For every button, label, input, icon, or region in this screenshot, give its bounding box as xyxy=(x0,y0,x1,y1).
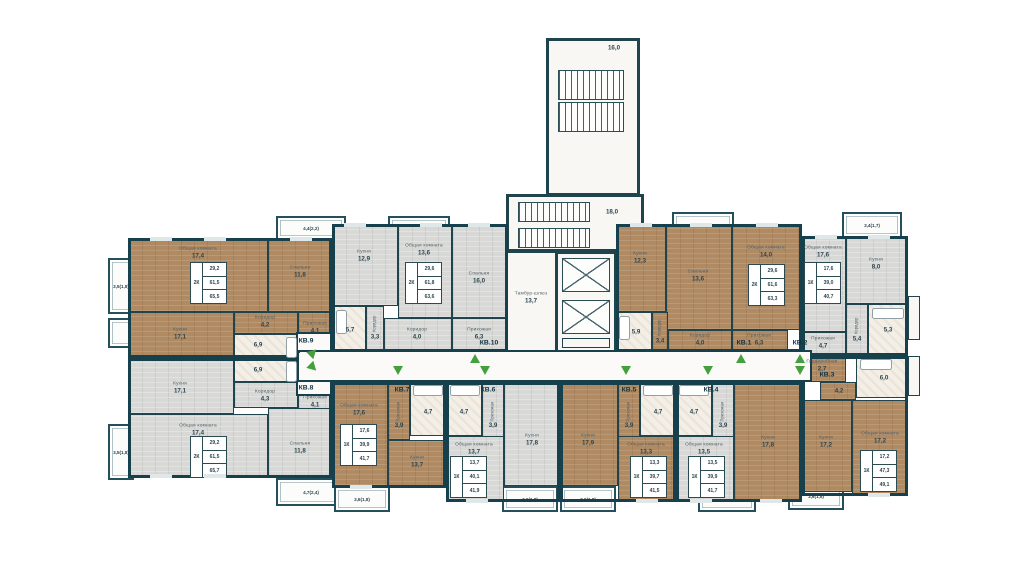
kv3-bath-label: 6,0 xyxy=(880,374,889,381)
room-area: 17,1 xyxy=(173,333,187,340)
kv1-kitchen xyxy=(616,224,666,312)
room-name: Общая комната xyxy=(685,442,723,448)
kv9-kitchen-label: Кухня17,1 xyxy=(173,327,187,340)
balcony-area: 4,7(2,4) xyxy=(303,490,319,495)
total-area: 61,5 xyxy=(203,277,226,291)
room-area: 13,3 xyxy=(627,448,665,455)
room-name: Гардеробная xyxy=(806,359,837,365)
kv7-number: КВ.7 xyxy=(395,387,410,394)
kv5-bath-label: 4,7 xyxy=(654,408,663,415)
kv6-kitchen-label: Кухня17,8 xyxy=(525,433,539,446)
apt-type: 2К xyxy=(191,263,203,303)
total-area: 39,9 xyxy=(353,439,376,453)
balcony-area: 3,6(1,8) xyxy=(808,494,824,499)
room-area: 3,9 xyxy=(625,422,634,429)
total-area: 61,6 xyxy=(761,279,784,293)
window-opening xyxy=(150,474,172,478)
elevator-shaft xyxy=(562,258,610,292)
apt-type: 1К xyxy=(689,457,701,497)
room-area: 8,0 xyxy=(869,263,883,270)
room-area: 12,3 xyxy=(633,257,647,264)
balcony-area: 3,4(1,7) xyxy=(864,223,880,228)
kv9-cor-label: Коридор4,2 xyxy=(255,315,275,328)
total-area-with-balcony: 41,7 xyxy=(701,484,724,497)
kv4-bath-label: 4,7 xyxy=(690,408,699,415)
kv5-hall-label: Прихожая3,9 xyxy=(625,402,634,430)
total-area: 39,7 xyxy=(643,471,666,485)
kv4-hall-label: Прихожая3,9 xyxy=(719,402,728,430)
kv10-cor2-label: Коридор4,0 xyxy=(407,327,427,340)
kv2-stats-table: 1К17,639,040,7 xyxy=(804,262,841,304)
window-opening xyxy=(690,499,712,503)
kv9-hall-label: Прихожая4,1 xyxy=(303,321,327,334)
total-area-with-balcony: 41,5 xyxy=(643,484,666,497)
room-area: 3,9 xyxy=(719,422,728,429)
kv2-cor-label: Коридор5,4 xyxy=(853,318,862,343)
balcony-area: 3,6(1,8) xyxy=(354,497,370,502)
window-opening xyxy=(468,223,490,227)
total-area: 39,9 xyxy=(701,471,724,485)
total-area: 39,0 xyxy=(817,277,840,291)
kv6-stats-table: 1К13,740,141,9 xyxy=(450,456,487,498)
apt-type: 1К xyxy=(631,457,643,497)
room-area: 5,9 xyxy=(632,328,641,335)
living-area: 29,6 xyxy=(418,263,441,277)
balcony-area: 4,4(2,2) xyxy=(303,226,319,231)
kv9-bath-label: 6,9 xyxy=(254,341,263,348)
kv1-bath-label: 5,9 xyxy=(632,328,641,335)
room-area: 3,3 xyxy=(371,333,380,340)
balcony-area: 3,5(1,8) xyxy=(113,284,129,289)
kv6-bath-label: 4,7 xyxy=(460,408,469,415)
kv8-cor-label: Коридор4,3 xyxy=(255,389,275,402)
total-area: 61,8 xyxy=(418,277,441,291)
bay-window xyxy=(908,356,920,396)
room-name: Кухня xyxy=(761,435,775,441)
window-opening xyxy=(690,223,712,227)
kv5-stats-table: 1К13,339,741,5 xyxy=(630,456,667,498)
room-name: Спальня xyxy=(688,269,709,275)
living-area: 17,2 xyxy=(873,451,896,465)
room-name: Прихожая xyxy=(721,402,725,421)
window-opening xyxy=(290,237,312,241)
vent-shaft xyxy=(562,338,610,348)
balcony: 3,6(1,8) xyxy=(502,486,558,512)
room-name: Общая комната xyxy=(804,245,842,251)
kv1-kitchen-label: Кухня12,3 xyxy=(633,251,647,264)
living-area: 17,6 xyxy=(817,263,840,277)
window-opening xyxy=(466,499,488,503)
room-area: 6,0 xyxy=(880,374,889,381)
bathtub xyxy=(872,308,904,319)
entrance-arrow-kv5 xyxy=(621,366,631,375)
entrance-arrow-kv3 xyxy=(795,366,805,375)
window-opening xyxy=(150,237,172,241)
balcony-area: 3,5(1,8) xyxy=(113,450,129,455)
room-area: 3,4 xyxy=(656,337,665,344)
kv4-number: КВ.4 xyxy=(704,387,719,394)
room-name: Спальня xyxy=(469,271,490,277)
room-area: 6,9 xyxy=(254,366,263,373)
room-name: Кухня xyxy=(173,381,187,387)
room-area: 4,0 xyxy=(690,339,710,346)
room-name: Тамбур-шлюз xyxy=(515,291,548,297)
kv8-bed-label: Спальня11,8 xyxy=(290,441,311,454)
window-opening xyxy=(204,237,226,241)
kv8-bath-label: 6,9 xyxy=(254,366,263,373)
entrance-arrow-kv7 xyxy=(393,366,403,375)
room-area: 17,4 xyxy=(179,252,217,259)
bathtub xyxy=(619,316,630,340)
room-name: Прихожая xyxy=(747,333,771,339)
room-name: Прихожая xyxy=(811,336,835,342)
room-area: 13,5 xyxy=(685,448,723,455)
bathtub xyxy=(450,385,480,396)
total-area-with-balcony: 63,3 xyxy=(761,292,784,305)
window-opening xyxy=(636,499,658,503)
stair-flight xyxy=(518,228,590,248)
room-area: 17,9 xyxy=(581,439,595,446)
kv10-living-label: Общая комната13,6 xyxy=(405,243,443,256)
room-area: 4,1 xyxy=(303,327,327,334)
kv7-bath-label: 4,7 xyxy=(424,408,433,415)
kv6-number: КВ.6 xyxy=(481,387,496,394)
balcony-area: 3,6(1,8) xyxy=(522,497,538,502)
room-area: 4,7 xyxy=(654,408,663,415)
room-area: 16,0 xyxy=(469,277,490,284)
room-name: Кухня xyxy=(173,327,187,333)
kv10-cor1-label: Коридор3,3 xyxy=(371,316,380,341)
kv2-bath-label: 5,3 xyxy=(884,326,893,333)
kv8-stats-table: 2К29,261,565,7 xyxy=(190,436,227,478)
room-area: 17,6 xyxy=(804,251,842,258)
room-area: 17,1 xyxy=(173,387,187,394)
apt-type: 1К xyxy=(861,451,873,491)
total-area: 61,5 xyxy=(203,451,226,465)
window-opening xyxy=(350,485,372,489)
kv5-kitchen-label: Кухня17,9 xyxy=(581,433,595,446)
window-opening xyxy=(868,235,890,239)
stairwell-area-label: 18,0 xyxy=(606,208,618,215)
room-name: Коридор xyxy=(855,318,859,335)
room-name: Прихожая xyxy=(491,402,495,421)
room-area: 13,7 xyxy=(455,448,493,455)
stair-flight xyxy=(518,202,590,222)
room-area: 4,7 xyxy=(424,408,433,415)
room-name: Коридор xyxy=(407,327,427,333)
room-name: Коридор xyxy=(255,389,275,395)
kv5-number: КВ.5 xyxy=(622,387,637,394)
room-area: 5,4 xyxy=(853,335,862,342)
room-area: 17,6 xyxy=(340,409,378,416)
kv3-kitchen-label: Кухня17,2 xyxy=(819,435,833,448)
elevator-shaft xyxy=(562,300,610,334)
room-area: 5,3 xyxy=(884,326,893,333)
balcony: 3,6(1,8) xyxy=(334,486,390,512)
living-area: 29,6 xyxy=(761,265,784,279)
total-area-with-balcony: 63,6 xyxy=(418,290,441,303)
room-area: 4,0 xyxy=(407,333,427,340)
room-name: Прихожая xyxy=(627,402,631,421)
room-name: Общая комната xyxy=(747,245,785,251)
room-area: 17,2 xyxy=(819,441,833,448)
entrance-arrow-kv2 xyxy=(795,354,805,363)
balcony: 3,6(1,8) xyxy=(560,486,616,512)
window-opening xyxy=(344,223,366,227)
kv4-stats-table: 1К13,539,941,7 xyxy=(688,456,725,498)
kv9-bed-label: Спальня11,8 xyxy=(290,265,311,278)
kv5-living-label: Общая комната13,3 xyxy=(627,442,665,455)
room-name: Спальня xyxy=(290,441,311,447)
kv10-bed-label: Спальня16,0 xyxy=(469,271,490,284)
kv1-cor2-label: Коридор4,0 xyxy=(690,333,710,346)
kv1-number: КВ.1 xyxy=(737,340,752,347)
kv9-number: КВ.9 xyxy=(299,338,314,345)
kv10-number: КВ.10 xyxy=(480,340,499,347)
kv1-living-label: Общая комната14,0 xyxy=(747,245,785,258)
room-name: Общая комната xyxy=(405,243,443,249)
bathtub xyxy=(286,361,297,382)
total-area: 40,1 xyxy=(463,471,486,485)
room-name: Общая комната xyxy=(861,431,899,437)
room-name: Общая комната xyxy=(179,423,217,429)
kv8-hall-label: Прихожая4,1 xyxy=(303,395,327,408)
bathtub xyxy=(286,337,297,358)
kv10-bath-label: 5,7 xyxy=(346,326,355,333)
bathtub xyxy=(643,385,673,396)
apt-type: 1К xyxy=(451,457,463,497)
room-name: Прихожая xyxy=(467,327,491,333)
entrance-arrow-kv10 xyxy=(470,354,480,363)
window-opening xyxy=(420,223,442,227)
apt-type: 2К xyxy=(749,265,761,305)
room-area: 12,9 xyxy=(357,255,371,262)
window-opening xyxy=(815,235,837,239)
living-area: 13,5 xyxy=(701,457,724,471)
entrance-arrow-kv4 xyxy=(703,366,713,375)
living-area: 13,7 xyxy=(463,457,486,471)
room-name: Прихожая xyxy=(303,395,327,401)
kv10-kitchen xyxy=(332,224,398,306)
kv1-bed-label: Спальня13,6 xyxy=(688,269,709,282)
room-area: 14,0 xyxy=(747,251,785,258)
kv2-number: КВ.2 xyxy=(793,340,808,347)
living-area: 13,3 xyxy=(643,457,666,471)
apt-type: 1К xyxy=(805,263,817,303)
total-area-with-balcony: 40,7 xyxy=(817,290,840,303)
apt-type: 1К xyxy=(341,425,353,465)
room-area: 17,2 xyxy=(861,437,899,444)
room-name: Кухня xyxy=(869,257,883,263)
total-area-with-balcony: 41,9 xyxy=(463,484,486,497)
window-opening xyxy=(760,499,782,503)
kv3-living-label: Общая комната17,2 xyxy=(861,431,899,444)
room-area: 17,8 xyxy=(761,441,775,448)
window-opening xyxy=(630,223,652,227)
room-name: Коридор xyxy=(255,315,275,321)
room-name: Прихожая xyxy=(303,321,327,327)
room-name: Кухня xyxy=(410,455,424,461)
entrance-arrow-kv6 xyxy=(480,366,490,375)
kv10-stats-table: 2К29,661,863,6 xyxy=(405,262,442,304)
kv10-kitchen-label: Кухня12,9 xyxy=(357,249,371,262)
vestibule-label: Тамбур-шлюз 13,7 xyxy=(515,291,548,304)
tower-stair-flight xyxy=(558,102,624,132)
living-area: 29,2 xyxy=(203,437,226,451)
kv2-living-label: Общая комната17,6 xyxy=(804,245,842,258)
room-area: 11,8 xyxy=(290,447,311,454)
room-name: Кухня xyxy=(633,251,647,257)
balcony-area: 3,6(1,8) xyxy=(580,497,596,502)
window-opening xyxy=(204,474,226,478)
tower-stair-flight xyxy=(558,70,624,100)
total-area: 47,3 xyxy=(873,465,896,479)
room-area: 5,7 xyxy=(346,326,355,333)
total-area-with-balcony: 41,7 xyxy=(353,452,376,465)
total-area-with-balcony: 49,1 xyxy=(873,478,896,491)
entrance-arrow-kv1 xyxy=(736,354,746,363)
room-name: Кухня xyxy=(357,249,371,255)
room-area: 3,9 xyxy=(489,422,498,429)
room-area: 4,7 xyxy=(460,408,469,415)
room-area: 13,7 xyxy=(515,297,548,304)
kv2-kitch-label: Кухня8,0 xyxy=(869,257,883,270)
kv7-kitchen-label: Кухня13,7 xyxy=(410,455,424,468)
room-area: 13,6 xyxy=(688,275,709,282)
window-opening xyxy=(756,223,778,227)
room-name: Общая комната xyxy=(455,442,493,448)
room-area: 4,7 xyxy=(690,408,699,415)
window-opening xyxy=(868,493,890,497)
floor-plan: 16,0 3,5(1,8) 3,5(1,8) 4,4(2,2) 3,6(1,8)… xyxy=(0,0,1024,580)
room-area: 4,2 xyxy=(255,321,275,328)
kv7-hall-label: Прихожая3,9 xyxy=(395,402,404,430)
room-area: 3,9 xyxy=(395,422,404,429)
room-area: 17,8 xyxy=(525,439,539,446)
kv3-cor-label: 4,2 xyxy=(835,387,844,394)
kv8-number: КВ.8 xyxy=(299,385,314,392)
bay-window xyxy=(908,296,920,340)
living-area: 29,2 xyxy=(203,263,226,277)
kv4-living-label: Общая комната13,5 xyxy=(685,442,723,455)
tower-area-label: 16,0 xyxy=(608,44,620,51)
room-name: Общая комната xyxy=(627,442,665,448)
kv9-living-label: Общая комната17,4 xyxy=(179,246,217,259)
room-area: 4,7 xyxy=(811,342,835,349)
kv2-hall-label: Прихожая4,7 xyxy=(811,336,835,349)
room-area: 4,3 xyxy=(255,395,275,402)
apt-type: 2К xyxy=(191,437,203,477)
room-area: 16,0 xyxy=(608,44,620,51)
bathtub xyxy=(860,359,892,370)
room-name: Общая комната xyxy=(340,403,378,409)
room-name: Прихожая xyxy=(397,402,401,421)
total-area-with-balcony: 65,5 xyxy=(203,290,226,303)
room-name: Коридор xyxy=(658,320,662,337)
room-name: Коридор xyxy=(690,333,710,339)
kv4-kitchen-label: Кухня17,8 xyxy=(761,435,775,448)
kv9-stats-table: 2К29,261,565,5 xyxy=(190,262,227,304)
room-area: 11,8 xyxy=(290,271,311,278)
kv1-stats-table: 2К29,661,663,3 xyxy=(748,264,785,306)
room-name: Коридор xyxy=(373,316,377,333)
kv8-kitchen-label: Кухня17,1 xyxy=(173,381,187,394)
kv8-living-label: Общая комната17,4 xyxy=(179,423,217,436)
living-area: 17,6 xyxy=(353,425,376,439)
apt-type: 2К xyxy=(406,263,418,303)
kv6-living-label: Общая комната13,7 xyxy=(455,442,493,455)
room-area: 4,2 xyxy=(835,387,844,394)
room-area: 6,9 xyxy=(254,341,263,348)
kv6-hall-label: Прихожая3,9 xyxy=(489,402,498,430)
main-corridor xyxy=(298,350,812,382)
bathtub xyxy=(413,385,443,396)
room-area: 13,6 xyxy=(405,249,443,256)
room-area: 18,0 xyxy=(606,208,618,215)
room-name: Кухня xyxy=(525,433,539,439)
kv7-living-label: Общая комната17,6 xyxy=(340,403,378,416)
room-name: Спальня xyxy=(290,265,311,271)
room-name: Кухня xyxy=(581,433,595,439)
room-area: 13,7 xyxy=(410,461,424,468)
room-name: Кухня xyxy=(819,435,833,441)
kv1-cor1-label: Коридор3,4 xyxy=(656,320,665,345)
room-name: Общая комната xyxy=(179,246,217,252)
room-area: 4,1 xyxy=(303,401,327,408)
kv7-stats-table: 1К17,639,941,7 xyxy=(340,424,377,466)
kv3-stats-table: 1К17,247,349,1 xyxy=(860,450,897,492)
kv3-number: КВ.3 xyxy=(820,372,835,379)
